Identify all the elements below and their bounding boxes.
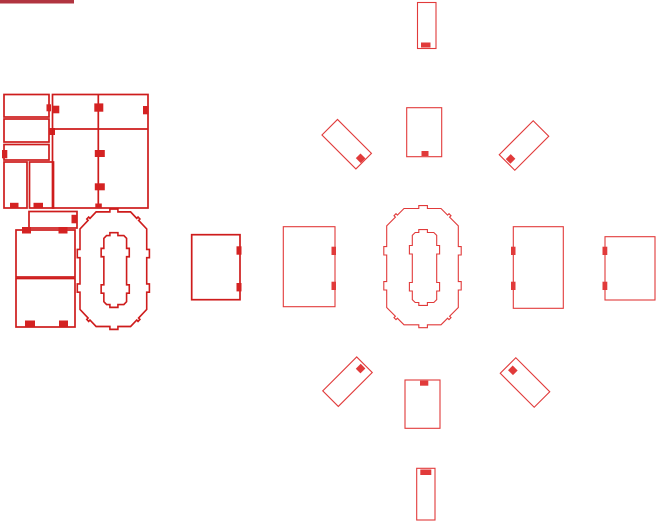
part-top-panel-tab	[422, 151, 429, 156]
part-octagon-left-outer[interactable]	[77, 209, 149, 329]
part-main-board-tab-4	[95, 150, 105, 157]
part-side-far-right[interactable]	[605, 237, 655, 300]
part-panel-e[interactable]	[30, 162, 54, 208]
part-side-panel-bold-tab-1	[237, 246, 242, 254]
part-top-vertical[interactable]	[418, 3, 437, 49]
cad-canvas[interactable]	[0, 0, 666, 525]
part-side-left-tab-2	[332, 282, 337, 290]
part-square-2-tab-1	[25, 321, 35, 327]
part-octagon-left-inner[interactable]	[101, 233, 129, 308]
part-diag-se[interactable]	[500, 358, 549, 407]
part-panel-e-tab	[34, 203, 44, 208]
part-bar[interactable]	[29, 212, 77, 229]
part-panel-c-tab	[2, 150, 7, 158]
part-bottom-panel-tab	[420, 381, 428, 386]
part-diag-nw[interactable]	[322, 119, 371, 168]
cad-viewport	[0, 0, 666, 525]
part-diag-sw-tab	[356, 364, 366, 374]
part-square-1[interactable]	[16, 230, 75, 277]
part-side-right[interactable]	[513, 227, 563, 309]
part-bar-tab	[72, 215, 77, 224]
part-panel-a-tab	[47, 104, 52, 111]
part-square-2-tab-2	[59, 321, 68, 327]
part-square-2[interactable]	[16, 279, 75, 328]
part-main-board-tab-6	[95, 204, 102, 209]
part-bottom-vertical[interactable]	[417, 468, 435, 520]
part-octagon-center-outer[interactable]	[384, 206, 461, 328]
part-panel-c[interactable]	[4, 145, 49, 161]
part-side-far-right-tab-1	[603, 247, 608, 255]
part-bottom-vertical-tab	[420, 470, 431, 476]
part-top-panel[interactable]	[407, 108, 442, 157]
part-bottom-panel[interactable]	[405, 380, 440, 428]
part-panel-a[interactable]	[4, 95, 49, 118]
part-top-vertical-tab	[421, 43, 431, 48]
part-side-far-right-tab-2	[603, 282, 608, 290]
part-square-1-tab-1	[22, 227, 31, 234]
part-side-left-tab-1	[332, 247, 337, 255]
part-main-board-tab-3	[53, 106, 60, 114]
part-square-1-tab-2	[59, 227, 68, 234]
part-panel-d[interactable]	[4, 162, 27, 208]
part-diag-nw-tab	[356, 153, 366, 163]
part-side-right-tab-2	[511, 282, 516, 290]
part-side-panel-bold[interactable]	[192, 235, 240, 300]
part-diag-sw[interactable]	[323, 357, 372, 406]
part-side-left[interactable]	[283, 227, 335, 307]
part-panel-d-tab	[10, 203, 19, 208]
part-main-board-tab-2	[143, 106, 149, 114]
part-main-board-tab-1	[94, 103, 103, 111]
part-side-panel-bold-tab-2	[237, 283, 242, 291]
part-panel-b[interactable]	[4, 119, 49, 142]
part-main-board-tab-5	[95, 183, 105, 190]
part-diag-se-tab	[508, 366, 518, 376]
part-diag-ne[interactable]	[499, 121, 548, 170]
titlebar-fragment	[0, 0, 74, 4]
part-octagon-center-inner[interactable]	[409, 230, 439, 306]
part-side-right-tab-1	[511, 247, 516, 255]
